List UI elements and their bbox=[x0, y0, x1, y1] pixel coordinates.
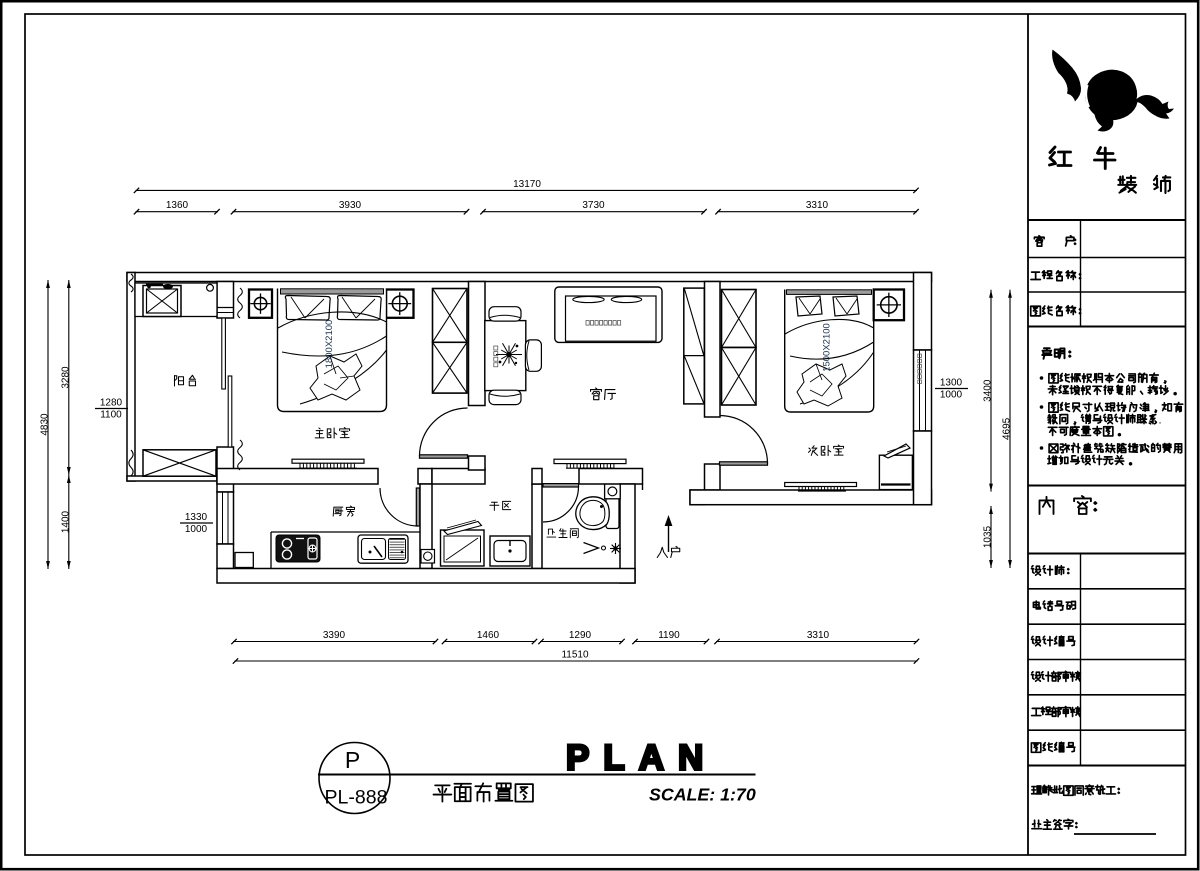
svg-text:PL-888: PL-888 bbox=[325, 787, 388, 809]
svg-text:11510: 11510 bbox=[561, 650, 589, 661]
svg-text:13170: 13170 bbox=[513, 179, 541, 190]
svg-text:3310: 3310 bbox=[806, 200, 829, 211]
svg-text:1800X2100: 1800X2100 bbox=[324, 320, 335, 369]
svg-text:3310: 3310 bbox=[807, 630, 830, 641]
svg-text:PLAN: PLAN bbox=[566, 739, 717, 778]
svg-text:3280: 3280 bbox=[60, 366, 71, 389]
svg-text:1400: 1400 bbox=[60, 510, 71, 533]
svg-text:4830: 4830 bbox=[40, 413, 51, 436]
svg-text:4695: 4695 bbox=[1002, 417, 1013, 440]
svg-text:1035: 1035 bbox=[983, 525, 994, 548]
svg-text:1290: 1290 bbox=[569, 630, 592, 641]
svg-text:.: . bbox=[1159, 414, 1162, 426]
svg-text:1460: 1460 bbox=[477, 630, 500, 641]
svg-text:3400: 3400 bbox=[983, 379, 994, 402]
svg-text:1280: 1280 bbox=[100, 398, 123, 409]
svg-text:3390: 3390 bbox=[323, 630, 346, 641]
svg-text:1330: 1330 bbox=[185, 512, 208, 523]
svg-text:1190: 1190 bbox=[658, 630, 680, 641]
svg-text:1000: 1000 bbox=[185, 524, 208, 535]
svg-text:3730: 3730 bbox=[582, 200, 605, 211]
svg-text:1360: 1360 bbox=[166, 200, 189, 211]
svg-text:3930: 3930 bbox=[339, 200, 362, 211]
svg-text:SCALE: 1:70: SCALE: 1:70 bbox=[649, 785, 756, 805]
svg-text:1300: 1300 bbox=[940, 378, 963, 389]
svg-text:1500X2100: 1500X2100 bbox=[822, 323, 833, 372]
svg-text:P: P bbox=[345, 747, 360, 773]
svg-text:1100: 1100 bbox=[100, 410, 122, 421]
svg-text:1000: 1000 bbox=[940, 390, 963, 401]
